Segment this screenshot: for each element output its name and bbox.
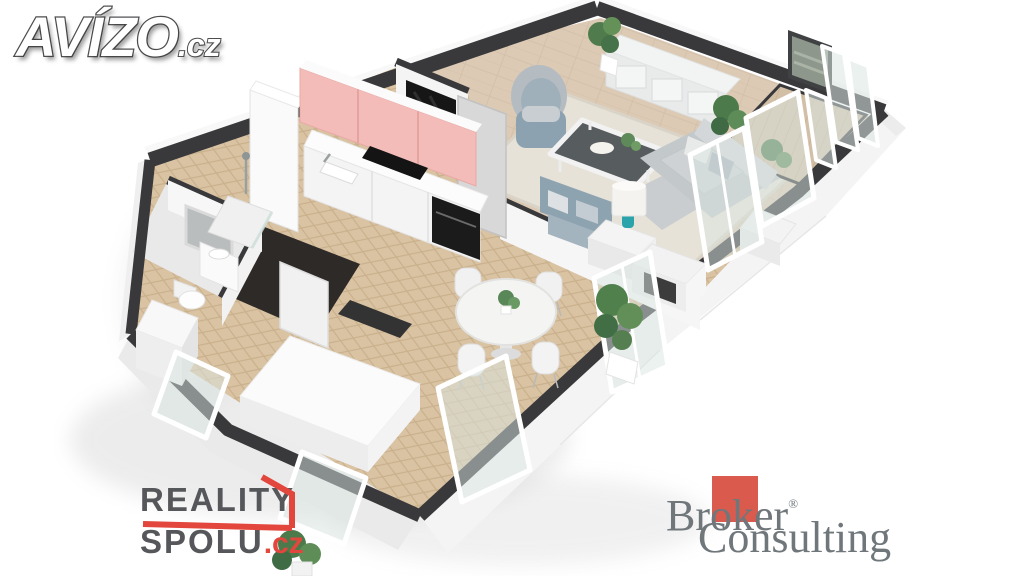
avizo-logo: AVÍZO.cz [16,4,221,69]
floorplan-render: AVÍZO.cz REALITY SPOLU.cz Broker® Consul… [0,0,1024,576]
reality-spolu-logo: REALITY SPOLU.cz [140,482,460,562]
broker-consulting-logo: Broker® Consulting [660,468,940,568]
avizo-logo-tld: .cz [178,27,221,63]
reality-spolu-roof-icon [140,472,320,542]
avizo-logo-text: AVÍZO [16,5,178,68]
armchair [511,65,567,148]
registered-mark: ® [788,496,798,511]
broker-word2: Consulting [698,516,891,560]
